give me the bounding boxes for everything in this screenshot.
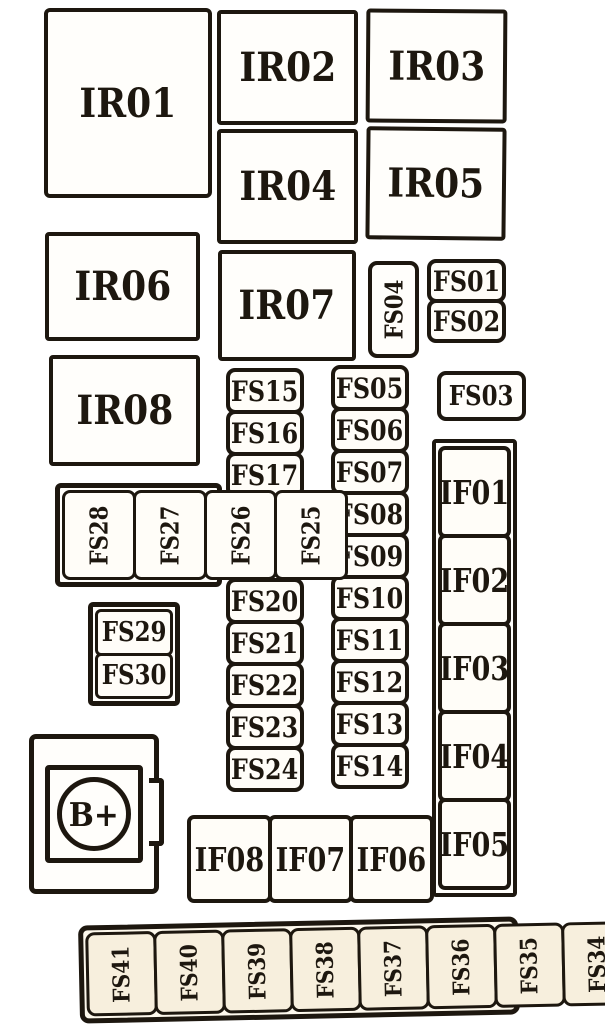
relay-IR04: IR04 bbox=[217, 129, 358, 244]
fuse-IF07: IF07 bbox=[268, 815, 353, 903]
fuse-FS04-label: FS04 bbox=[379, 280, 408, 340]
fuse-FS23: FS23 bbox=[226, 704, 304, 750]
fuse-FS20: FS20 bbox=[226, 578, 304, 624]
fuse-IF03-label: IF03 bbox=[440, 649, 510, 688]
relay-IR01: IR01 bbox=[44, 8, 212, 198]
fuse-FS17-label: FS17 bbox=[231, 459, 298, 492]
fuse-FS15-label: FS15 bbox=[231, 375, 298, 408]
fuse-FS21-label: FS21 bbox=[231, 627, 298, 660]
fuse-FS23-label: FS23 bbox=[231, 711, 298, 744]
fuse-FS28-label: FS28 bbox=[84, 505, 113, 565]
fuse-FS06-label: FS06 bbox=[336, 414, 403, 447]
fuse-strip-fs41-fs31: FS41FS40FS39FS38FS37FS36FS35FS34FS33FS32… bbox=[78, 916, 520, 1023]
fuse-IF05-label: IF05 bbox=[440, 825, 510, 864]
fuse-FS37: FS37 bbox=[357, 925, 430, 1010]
fuse-FS28: FS28 bbox=[62, 490, 136, 580]
fuse-column-fs15-fs24: FS15FS16FS17FS18FS19FS20FS21FS22FS23FS24 bbox=[226, 368, 304, 792]
fuse-box-diagram: IR01 IR02 IR03 IR04 IR05 IR06 IR07 IR08 … bbox=[0, 0, 605, 1024]
fuse-FS35: FS35 bbox=[493, 922, 566, 1007]
fuse-FS40-label: FS40 bbox=[175, 943, 203, 1001]
fuse-FS01-label: FS01 bbox=[433, 265, 500, 298]
fuse-FS27-label: FS27 bbox=[155, 505, 184, 565]
relay-IR05-label: IR05 bbox=[387, 159, 484, 207]
fuse-FS14: FS14 bbox=[331, 743, 409, 789]
relay-IR06-label: IR06 bbox=[74, 263, 171, 310]
fuse-FS10: FS10 bbox=[331, 575, 409, 621]
fuse-FS41-label: FS41 bbox=[107, 945, 135, 1003]
fuse-FS34: FS34 bbox=[561, 921, 605, 1006]
fuse-FS37-label: FS37 bbox=[379, 939, 407, 997]
fuse-FS16: FS16 bbox=[226, 410, 304, 456]
fuse-IF03: IF03 bbox=[438, 622, 511, 714]
battery-terminal-circle: B+ bbox=[57, 777, 131, 851]
fuse-FS40: FS40 bbox=[153, 930, 226, 1015]
fuse-FS34-label: FS34 bbox=[583, 935, 605, 993]
fuse-FS11: FS11 bbox=[331, 617, 409, 663]
fuse-FS20-label: FS20 bbox=[231, 585, 298, 618]
fuse-FS01: FS01 bbox=[427, 259, 506, 303]
fuse-IF08: IF08 bbox=[187, 815, 272, 903]
fuse-FS05-label: FS05 bbox=[336, 372, 403, 405]
fuse-FS38-label: FS38 bbox=[311, 941, 339, 999]
fuse-FS29-label: FS29 bbox=[102, 617, 167, 648]
fuse-FS12: FS12 bbox=[331, 659, 409, 705]
battery-terminal-label: B+ bbox=[69, 795, 119, 834]
relay-IR07: IR07 bbox=[218, 250, 356, 361]
fuse-FS02: FS02 bbox=[427, 299, 506, 343]
fuse-IF07-label: IF07 bbox=[276, 840, 346, 879]
relay-IR08: IR08 bbox=[49, 355, 200, 466]
fuse-FS27: FS27 bbox=[133, 490, 207, 580]
fuse-FS10-label: FS10 bbox=[336, 582, 403, 615]
fuse-FS16-label: FS16 bbox=[231, 417, 298, 450]
fuse-FS29: FS29 bbox=[95, 609, 173, 656]
relay-IR03-label: IR03 bbox=[388, 42, 485, 90]
fuse-FS35-label: FS35 bbox=[515, 936, 543, 994]
fuse-IF06: IF06 bbox=[349, 815, 434, 903]
fuse-FS05: FS05 bbox=[331, 365, 409, 411]
fuse-FS03: FS03 bbox=[437, 371, 526, 421]
fuse-FS13-label: FS13 bbox=[336, 708, 403, 741]
relay-IR07-label: IR07 bbox=[239, 282, 336, 329]
fuse-FS22: FS22 bbox=[226, 662, 304, 708]
fuse-IF02: IF02 bbox=[438, 534, 511, 626]
fuse-column-if01-if05: IF01IF02IF03IF04IF05 bbox=[432, 439, 517, 897]
relay-IR02-label: IR02 bbox=[239, 44, 336, 91]
fuse-FS36: FS36 bbox=[425, 924, 498, 1009]
fuse-FS02-label: FS02 bbox=[433, 305, 500, 338]
relay-IR01-label: IR01 bbox=[80, 80, 177, 127]
fuse-IF06-label: IF06 bbox=[357, 840, 427, 879]
fuse-FS24-label: FS24 bbox=[231, 753, 298, 786]
fuse-FS07: FS07 bbox=[331, 449, 409, 495]
fuse-FS25-label: FS25 bbox=[297, 505, 326, 565]
relay-IR02: IR02 bbox=[217, 10, 358, 125]
fuse-FS04: FS04 bbox=[368, 261, 419, 358]
fuse-row-if08-if06: IF08IF07IF06 bbox=[187, 815, 434, 903]
fuse-FS13: FS13 bbox=[331, 701, 409, 747]
fuse-FS26-label: FS26 bbox=[226, 505, 255, 565]
fuse-IF02-label: IF02 bbox=[440, 561, 510, 600]
fuse-FS24: FS24 bbox=[226, 746, 304, 792]
fuse-FS39-label: FS39 bbox=[243, 942, 271, 1000]
fuse-FS30-label: FS30 bbox=[102, 660, 167, 691]
fuse-group-fs29-fs30: FS29FS30 bbox=[88, 602, 180, 706]
relay-IR03: IR03 bbox=[366, 9, 508, 124]
fuse-IF04: IF04 bbox=[438, 710, 511, 802]
fuse-FS21: FS21 bbox=[226, 620, 304, 666]
fuse-FS22-label: FS22 bbox=[231, 669, 298, 702]
fuse-FS38: FS38 bbox=[289, 927, 362, 1012]
fuse-FS12-label: FS12 bbox=[336, 666, 403, 699]
fuse-stack-fs01-fs02: FS01FS02 bbox=[427, 259, 506, 343]
relay-IR06: IR06 bbox=[45, 232, 200, 341]
fuse-IF01: IF01 bbox=[438, 446, 511, 538]
fuse-FS14-label: FS14 bbox=[336, 750, 403, 783]
fuse-IF08-label: IF08 bbox=[195, 840, 265, 879]
fuse-FS07-label: FS07 bbox=[336, 456, 403, 489]
battery-terminal-tab bbox=[149, 778, 164, 846]
fuse-FS36-label: FS36 bbox=[447, 938, 475, 996]
fuse-FS26: FS26 bbox=[204, 490, 278, 580]
fuse-IF04-label: IF04 bbox=[440, 737, 510, 776]
fuse-FS41: FS41 bbox=[85, 931, 158, 1016]
fuse-IF01-label: IF01 bbox=[440, 473, 510, 512]
fuse-FS30: FS30 bbox=[95, 653, 173, 700]
fuse-FS11-label: FS11 bbox=[336, 624, 403, 657]
fuse-FS39: FS39 bbox=[221, 928, 294, 1013]
relay-IR08-label: IR08 bbox=[76, 387, 173, 434]
battery-terminal-inner-box: B+ bbox=[45, 765, 143, 863]
fuse-FS15: FS15 bbox=[226, 368, 304, 414]
fuse-FS25: FS25 bbox=[274, 490, 348, 580]
fuse-group-fs28-fs25: FS28FS27FS26FS25 bbox=[55, 483, 222, 587]
relay-IR04-label: IR04 bbox=[239, 163, 336, 210]
fuse-FS03-label: FS03 bbox=[449, 381, 514, 412]
fuse-FS06: FS06 bbox=[331, 407, 409, 453]
relay-IR05: IR05 bbox=[365, 126, 506, 240]
fuse-IF05: IF05 bbox=[438, 798, 511, 890]
